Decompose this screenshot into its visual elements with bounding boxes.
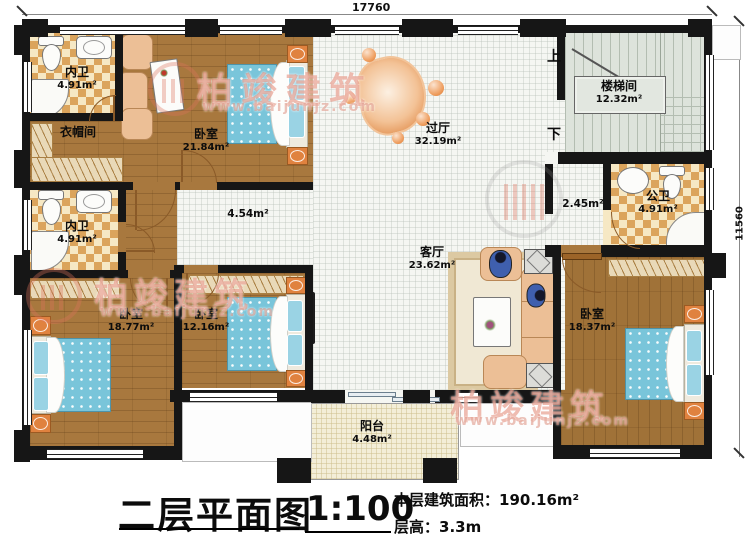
pillow [33,377,49,411]
top-dimension-label: 17760 [352,1,390,14]
nightstand [286,277,306,294]
window [190,392,277,402]
decor-ball [428,80,444,96]
pillar [403,390,430,403]
watermark-logo [26,268,82,324]
pillow [287,334,303,366]
person [489,250,512,278]
door-leaf [181,150,183,182]
nightstand [684,305,705,323]
top-dimension-line [22,14,712,15]
pillar [14,150,30,188]
sink-basin [83,40,105,55]
window [458,26,518,35]
pillow [33,341,49,375]
nightstand [287,147,308,165]
person [527,284,546,308]
scale-underline [305,531,391,533]
watermark-url: www.baijunjz.com [100,304,275,320]
floor-height-label: 层高： [394,518,439,536]
room-label-bath1: 内卫 4.91m² [57,66,96,91]
window [47,449,143,459]
window [335,26,399,35]
decor-ball [362,48,376,62]
door-opening [118,222,126,252]
stair-landing-treads [660,95,704,152]
nightstand [286,370,306,387]
wall [545,152,712,164]
nightstand [30,414,51,433]
pillar [277,458,311,483]
room-label-foyer: 过厅 32.19m² [415,122,461,147]
pillar [14,25,30,55]
pillar [688,19,712,37]
door-leaf [126,250,154,252]
pillow [686,330,702,362]
plan-title: 二层平面图 [118,485,313,539]
window [705,290,714,375]
pillar [14,430,30,462]
decor-ball [392,132,404,144]
room-label-cloakroom: 衣帽间 [60,126,96,140]
pillar [185,19,218,37]
door-opening [133,182,175,190]
window [23,62,32,112]
floor-area-label: 本层建筑面积： [394,491,499,509]
wall [305,265,313,402]
title-underline [119,528,299,530]
right-dimension-label: 11560 [735,196,746,252]
wardrobe [608,259,706,277]
watermark-logo [148,62,202,116]
stair-opening [545,152,558,164]
pillar [704,253,726,278]
lounge-chair [121,108,153,140]
door-opening [180,182,217,190]
door-opening [603,210,611,246]
hall-white-floor [177,190,313,265]
corridor-area-label: 2.45m² [562,198,603,210]
room-label-pubbath: 公卫 4.91m² [638,190,677,215]
window [23,200,32,250]
pillar [520,19,566,37]
sink-basin [83,194,105,209]
window [590,448,680,458]
wall [557,33,565,100]
room-label-living: 客厅 23.62m² [409,246,455,271]
pillow [287,300,303,332]
roof-outline-left [182,402,312,462]
pillar [402,19,453,37]
window [705,168,714,210]
window [705,55,714,150]
floor-area-line: 本层建筑面积：190.16m² [394,489,579,510]
pillar [311,390,340,403]
pillar [285,19,331,37]
watermark-url: www.baijunjz.com [455,413,630,429]
floor-height-value: 3.3m [439,518,481,536]
table-flowers [483,318,497,332]
sliding-door [348,392,396,397]
room-label-stairwell: 楼梯间 12.32m² [596,80,642,105]
pillow [686,364,702,396]
watermark-url: www.baijunjz.com [202,99,377,115]
wardrobe [31,157,123,182]
stair-up-label: 上 [547,46,561,66]
floor-height-line: 层高：3.3m [394,516,481,537]
room-label-bath2: 内卫 4.91m² [57,220,96,245]
room-label-bedroom-top: 卧室 21.84m² [183,128,229,153]
watermark-logo [485,160,563,238]
window [60,26,185,35]
floor-area-value: 190.16m² [499,491,579,509]
room-label-balcony: 阳台 4.48m² [352,420,391,445]
pillar [423,458,457,483]
nightstand [684,402,705,420]
lounge-chair [121,34,153,70]
window [23,330,32,425]
stair-down-label: 下 [547,124,561,144]
roof-outline [712,25,741,60]
window [220,26,282,35]
floor-plan-page: { "dims": { "top": "17760", "right": "11… [0,0,750,546]
wall [115,33,123,121]
bed-sheet [666,326,684,402]
door-leaf [135,190,137,230]
nightstand [287,45,308,63]
room-label-bedroom-br: 卧室 18.37m² [569,308,615,333]
hall-area-label: 4.54m² [227,208,268,220]
door-leaf [113,95,115,121]
